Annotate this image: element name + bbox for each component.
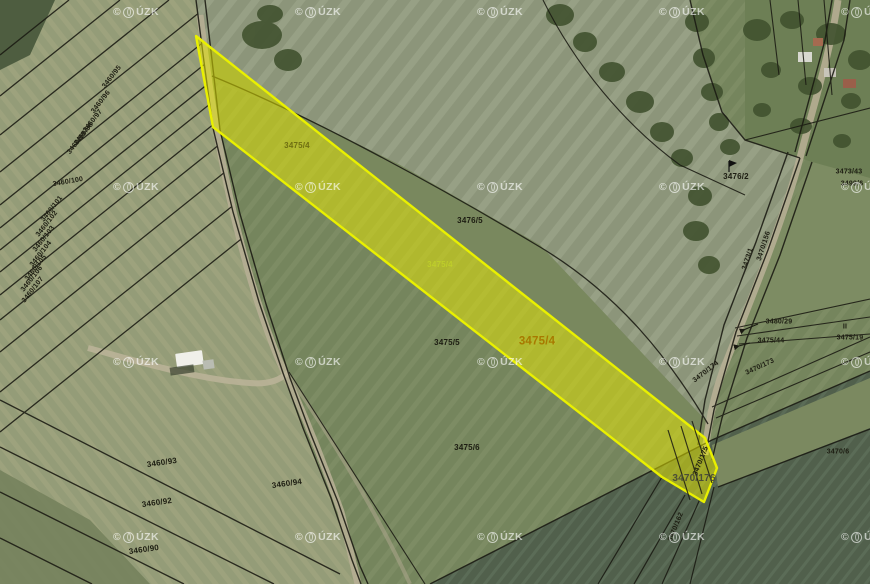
cadastral-map[interactable]: 3460/953460/963460/973460/983460/993460/… [0,0,870,584]
map-graphics [0,0,870,584]
